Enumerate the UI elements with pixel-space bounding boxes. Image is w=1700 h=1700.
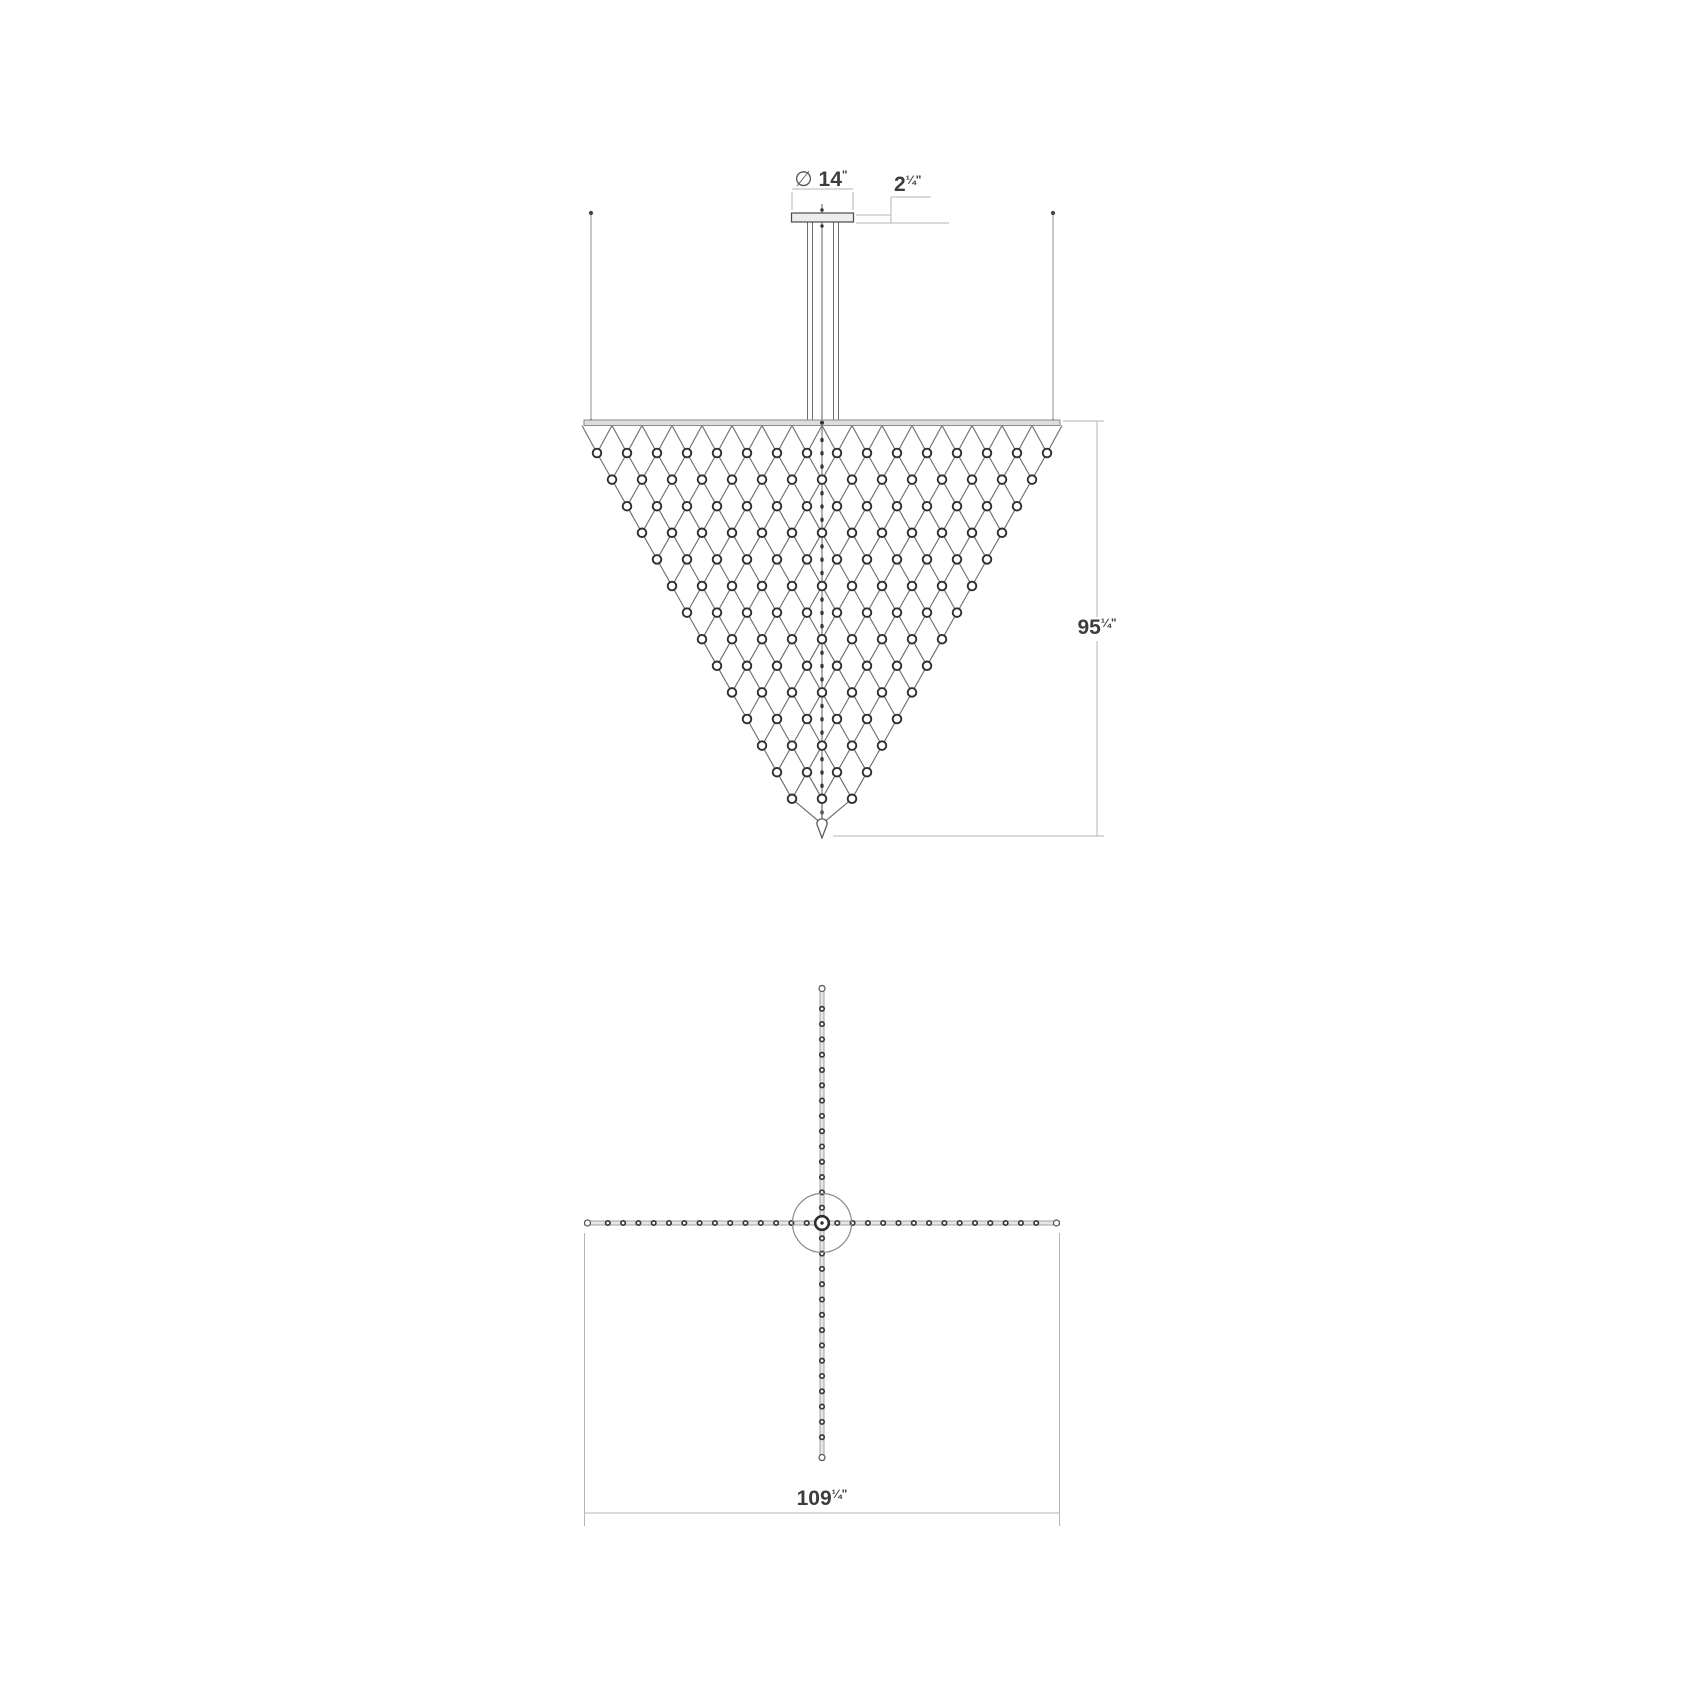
arm-led: [881, 1221, 885, 1225]
led-node: [848, 741, 857, 750]
led-node: [773, 555, 782, 564]
led-node: [653, 555, 662, 564]
led-node: [803, 555, 812, 564]
stem-led: [820, 464, 823, 469]
led-node: [863, 608, 872, 617]
led-node: [668, 529, 677, 538]
led-node: [953, 555, 962, 564]
led-node: [803, 662, 812, 671]
led-node: [908, 688, 917, 697]
led-node: [668, 475, 677, 484]
canopy-height-label: 2¼": [894, 173, 921, 196]
arm-led: [682, 1221, 686, 1225]
arm-led: [973, 1221, 977, 1225]
led-node: [713, 449, 722, 458]
led-node: [953, 449, 962, 458]
dimension-drawing: ∅ 14"2¼"95¼"109¼": [0, 0, 1700, 1700]
led-node: [758, 475, 767, 484]
led-node: [848, 582, 857, 591]
led-node: [923, 449, 932, 458]
apex-finial: [817, 819, 827, 838]
arm-led: [820, 1297, 824, 1301]
led-node: [893, 555, 902, 564]
stem-led: [820, 451, 823, 456]
canopy-diameter-label: ∅ 14": [794, 168, 847, 191]
led-node: [818, 475, 827, 484]
stem-led: [820, 571, 823, 576]
stem-led: [820, 757, 823, 762]
led-node: [788, 582, 797, 591]
led-node: [713, 662, 722, 671]
led-node: [788, 688, 797, 697]
led-node: [728, 635, 737, 644]
led-node: [938, 475, 947, 484]
led-node: [713, 555, 722, 564]
led-node: [833, 768, 842, 777]
led-node: [1013, 502, 1022, 511]
arm-led: [820, 1313, 824, 1317]
arm-led: [774, 1221, 778, 1225]
led-node: [683, 502, 692, 511]
bar-center-mark: [820, 421, 824, 425]
led-node: [698, 529, 707, 538]
arm-led: [820, 1435, 824, 1439]
net-cable: [822, 799, 852, 824]
led-node: [923, 502, 932, 511]
arm-led: [835, 1221, 839, 1225]
led-node: [758, 635, 767, 644]
led-node: [893, 662, 902, 671]
led-node: [683, 555, 692, 564]
led-node: [998, 529, 1007, 538]
led-node: [773, 502, 782, 511]
arm-led: [636, 1221, 640, 1225]
led-node: [803, 768, 812, 777]
arm-led: [820, 1343, 824, 1347]
arm-led: [820, 1236, 824, 1240]
arm-led: [805, 1221, 809, 1225]
led-node: [878, 741, 887, 750]
led-node: [998, 475, 1007, 484]
led-node: [1028, 475, 1037, 484]
arm-led: [820, 1282, 824, 1286]
arm-led: [866, 1221, 870, 1225]
arm-led: [759, 1221, 763, 1225]
led-node: [833, 502, 842, 511]
led-node: [893, 715, 902, 724]
led-node: [743, 608, 752, 617]
led-node: [878, 635, 887, 644]
arm-led: [912, 1221, 916, 1225]
led-node: [833, 715, 842, 724]
led-node: [833, 662, 842, 671]
led-node: [743, 662, 752, 671]
led-node: [908, 475, 917, 484]
plan-center-dot: [820, 1221, 823, 1224]
led-node: [878, 688, 887, 697]
led-node: [953, 608, 962, 617]
led-node: [728, 688, 737, 697]
dim-canopy-diameter: ∅ 14": [792, 168, 853, 210]
arm-led: [820, 1328, 824, 1332]
arm-led: [1003, 1221, 1007, 1225]
arm-led: [820, 1022, 824, 1026]
arm-led: [1034, 1221, 1038, 1225]
stem-led-beads: [820, 438, 823, 815]
led-node: [848, 795, 857, 804]
led-node: [863, 555, 872, 564]
led-node: [593, 449, 602, 458]
center-mark-dot: [820, 208, 823, 211]
led-node: [758, 529, 767, 538]
led-node: [803, 502, 812, 511]
stem-led: [820, 438, 823, 443]
arm-tip: [1054, 1220, 1060, 1226]
led-node: [878, 529, 887, 538]
arm-led: [606, 1221, 610, 1225]
led-node: [938, 635, 947, 644]
hanger-rod: [808, 222, 813, 420]
led-node: [878, 475, 887, 484]
led-node: [938, 529, 947, 538]
hanger-wire-left-anchor-dot: [589, 211, 593, 215]
led-node: [983, 555, 992, 564]
led-node: [833, 449, 842, 458]
led-node: [608, 475, 617, 484]
arm-led: [728, 1221, 732, 1225]
arm-led: [820, 1374, 824, 1378]
arm-led: [652, 1221, 656, 1225]
stem-led: [820, 518, 823, 523]
arm-led: [988, 1221, 992, 1225]
stem-led: [820, 770, 823, 775]
led-node: [698, 635, 707, 644]
arm-led: [820, 1389, 824, 1393]
arm-tip: [819, 986, 825, 992]
arm-led: [667, 1221, 671, 1225]
stem-led: [820, 597, 823, 602]
arm-led: [820, 1420, 824, 1424]
led-node: [818, 529, 827, 538]
stem-led: [820, 730, 823, 735]
led-node: [773, 715, 782, 724]
led-node: [743, 715, 752, 724]
arm-tip: [585, 1220, 591, 1226]
led-node: [788, 635, 797, 644]
stem-led: [820, 557, 823, 562]
arm-led: [621, 1221, 625, 1225]
stem-led: [820, 504, 823, 509]
led-node: [668, 582, 677, 591]
hanger-rod: [834, 222, 839, 420]
arm-led: [820, 1068, 824, 1072]
arm-led: [820, 1098, 824, 1102]
led-node: [773, 449, 782, 458]
overall-width-label: 109¼": [797, 1487, 848, 1510]
arm-led: [820, 1083, 824, 1087]
arm-led: [820, 1267, 824, 1271]
stem-led: [820, 624, 823, 629]
led-node: [728, 529, 737, 538]
led-node: [863, 502, 872, 511]
stem-led: [820, 611, 823, 616]
stem-led: [820, 491, 823, 496]
led-node: [788, 475, 797, 484]
arm-tip: [819, 1455, 825, 1461]
arm-led: [820, 1160, 824, 1164]
arm-led: [896, 1221, 900, 1225]
led-node: [773, 662, 782, 671]
led-node: [758, 582, 767, 591]
led-node: [728, 582, 737, 591]
led-node: [683, 608, 692, 617]
arm-led: [697, 1221, 701, 1225]
led-node: [743, 502, 752, 511]
arm-led: [743, 1221, 747, 1225]
arm-led: [958, 1221, 962, 1225]
led-node: [848, 688, 857, 697]
hanger-wire-right-anchor-dot: [1051, 211, 1055, 215]
led-node: [893, 608, 902, 617]
led-node: [848, 475, 857, 484]
led-node: [773, 608, 782, 617]
led-node: [1013, 449, 1022, 458]
arm-led: [1019, 1221, 1023, 1225]
led-node: [983, 502, 992, 511]
arm-led: [713, 1221, 717, 1225]
arm-led: [820, 1206, 824, 1210]
led-node: [698, 582, 707, 591]
led-node: [833, 555, 842, 564]
led-node: [938, 582, 947, 591]
net-cable: [792, 799, 822, 824]
led-node: [788, 741, 797, 750]
led-node: [863, 768, 872, 777]
led-node: [953, 502, 962, 511]
led-node: [818, 582, 827, 591]
led-node: [893, 502, 902, 511]
arm-led: [820, 1007, 824, 1011]
plan-view: 109¼": [585, 986, 1060, 1527]
led-node: [923, 608, 932, 617]
canopy-plate: [792, 213, 854, 222]
led-node: [968, 582, 977, 591]
arm-led: [927, 1221, 931, 1225]
led-node: [788, 795, 797, 804]
arm-led: [820, 1359, 824, 1363]
stem-led: [820, 784, 823, 789]
led-node: [818, 635, 827, 644]
led-node: [818, 741, 827, 750]
led-node: [803, 449, 812, 458]
led-node: [638, 475, 647, 484]
stem-led: [820, 664, 823, 669]
led-node: [848, 529, 857, 538]
arm-led: [820, 1114, 824, 1118]
led-node: [758, 688, 767, 697]
led-node: [863, 662, 872, 671]
led-node: [863, 449, 872, 458]
spec-sheet-page: ∅ 14"2¼"95¼"109¼": [0, 0, 1700, 1700]
led-node: [833, 608, 842, 617]
led-node: [908, 529, 917, 538]
led-node: [878, 582, 887, 591]
arm-led: [820, 1404, 824, 1408]
led-node: [698, 475, 707, 484]
stem-led: [820, 544, 823, 549]
arm-led: [820, 1053, 824, 1057]
led-node: [968, 529, 977, 538]
led-node: [923, 662, 932, 671]
led-node: [893, 449, 902, 458]
led-node: [803, 608, 812, 617]
led-node: [653, 502, 662, 511]
led-node: [653, 449, 662, 458]
center-mark-dot: [820, 224, 823, 227]
arm-led: [942, 1221, 946, 1225]
led-node: [623, 449, 632, 458]
led-node: [803, 715, 812, 724]
led-node: [818, 688, 827, 697]
led-node: [758, 741, 767, 750]
stem-led: [820, 651, 823, 656]
led-node: [713, 502, 722, 511]
stem-led: [820, 717, 823, 722]
led-node: [638, 529, 647, 538]
elevation-view: ∅ 14"2¼"95¼": [582, 168, 1123, 838]
led-node: [743, 555, 752, 564]
led-node: [818, 795, 827, 804]
led-node: [773, 768, 782, 777]
arm-led: [820, 1144, 824, 1148]
led-node: [863, 715, 872, 724]
led-node: [968, 475, 977, 484]
led-node: [623, 502, 632, 511]
arm-led: [820, 1037, 824, 1041]
led-node: [683, 449, 692, 458]
led-node: [1043, 449, 1052, 458]
led-node: [713, 608, 722, 617]
led-node: [743, 449, 752, 458]
led-node: [728, 475, 737, 484]
led-node: [923, 555, 932, 564]
led-node: [983, 449, 992, 458]
stem-led: [820, 704, 823, 709]
led-node: [908, 635, 917, 644]
arm-led: [820, 1129, 824, 1133]
dim-canopy-height: 2¼": [856, 173, 949, 223]
stem-led: [820, 677, 823, 682]
led-node: [908, 582, 917, 591]
led-node: [848, 635, 857, 644]
led-node: [788, 529, 797, 538]
arm-led: [820, 1175, 824, 1179]
